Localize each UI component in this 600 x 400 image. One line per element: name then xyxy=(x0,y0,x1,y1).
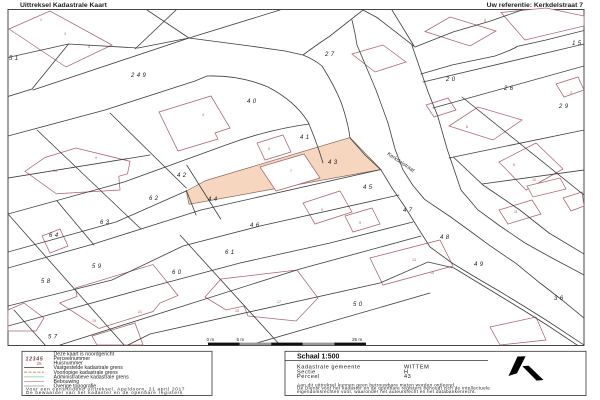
svg-text:3: 3 xyxy=(570,91,572,95)
svg-text:13: 13 xyxy=(412,258,416,262)
svg-text:57: 57 xyxy=(48,335,59,341)
svg-text:59: 59 xyxy=(92,264,103,270)
svg-text:11: 11 xyxy=(514,210,518,214)
svg-text:41: 41 xyxy=(300,135,311,141)
svg-text:De bewaarder van het kadaster: De bewaarder van het kadaster en de open… xyxy=(26,390,183,395)
svg-text:20: 20 xyxy=(445,77,457,83)
svg-text:9: 9 xyxy=(359,221,361,225)
svg-text:9: 9 xyxy=(321,208,323,212)
svg-text:4: 4 xyxy=(202,113,204,117)
svg-text:29: 29 xyxy=(558,104,570,110)
svg-text:61: 61 xyxy=(225,250,236,256)
svg-text:3: 3 xyxy=(64,32,66,36)
svg-text:15: 15 xyxy=(430,271,434,275)
svg-text:40: 40 xyxy=(247,99,258,105)
svg-text:5 m: 5 m xyxy=(237,337,245,342)
svg-text:5: 5 xyxy=(484,19,486,23)
svg-text:15: 15 xyxy=(235,309,239,313)
svg-text:Uw referentie: Kerkdelstraat 7: Uw referentie: Kerkdelstraat 7 xyxy=(487,2,584,9)
svg-text:eigendomsrechten voor, waarond: eigendomsrechten voor, waaronder het aut… xyxy=(297,389,476,394)
svg-text:Perceel: Perceel xyxy=(297,374,320,380)
svg-text:1: 1 xyxy=(40,18,42,22)
svg-text:25 m: 25 m xyxy=(352,337,362,342)
svg-text:8: 8 xyxy=(466,125,468,129)
svg-text:44: 44 xyxy=(208,197,219,203)
svg-text:63: 63 xyxy=(100,220,111,226)
svg-text:60: 60 xyxy=(172,270,183,276)
svg-text:36: 36 xyxy=(554,296,565,302)
svg-text:47: 47 xyxy=(403,208,414,214)
svg-text:42: 42 xyxy=(177,173,188,179)
svg-text:48: 48 xyxy=(440,235,451,241)
svg-text:5: 5 xyxy=(88,45,90,49)
svg-text:10: 10 xyxy=(532,178,536,182)
svg-text:64: 64 xyxy=(49,233,60,239)
svg-text:49: 49 xyxy=(474,262,485,268)
svg-text:Schaal 1:500: Schaal 1:500 xyxy=(297,353,340,360)
svg-text:14: 14 xyxy=(53,169,57,173)
svg-text:46: 46 xyxy=(250,223,261,229)
svg-text:62: 62 xyxy=(149,196,160,202)
svg-text:6: 6 xyxy=(513,163,515,167)
svg-text:15: 15 xyxy=(572,41,583,47)
svg-text:43: 43 xyxy=(328,160,339,166)
svg-text:17: 17 xyxy=(277,300,281,304)
svg-text:26: 26 xyxy=(503,86,515,92)
svg-text:58: 58 xyxy=(41,279,52,285)
svg-text:7: 7 xyxy=(290,169,292,173)
svg-text:25: 25 xyxy=(37,361,43,366)
svg-text:19: 19 xyxy=(92,319,96,323)
svg-text:Uittreksel Kadastrale Kaart: Uittreksel Kadastrale Kaart xyxy=(20,2,108,9)
svg-text:27: 27 xyxy=(324,52,336,58)
svg-text:51: 51 xyxy=(9,56,20,62)
svg-text:45: 45 xyxy=(363,185,374,191)
svg-text:21: 21 xyxy=(138,310,142,314)
svg-text:249: 249 xyxy=(130,73,148,79)
svg-text:5: 5 xyxy=(268,147,270,151)
svg-text:9: 9 xyxy=(95,156,97,160)
svg-text:50: 50 xyxy=(353,302,364,308)
svg-text:43: 43 xyxy=(404,374,411,380)
svg-text:0 m: 0 m xyxy=(207,337,215,342)
